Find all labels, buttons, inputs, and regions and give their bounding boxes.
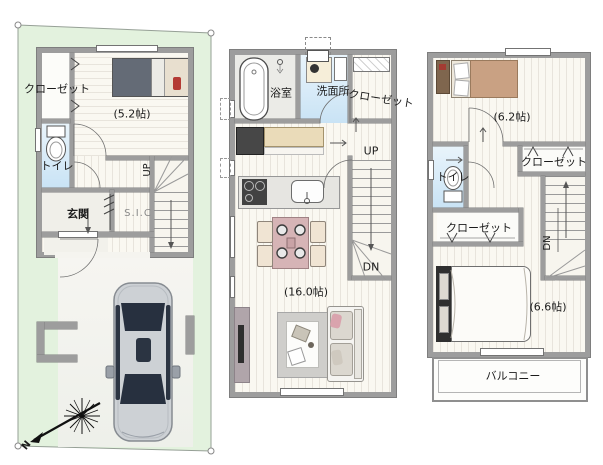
label-stairs-up-1f: UP [143,163,153,176]
sofa-backrest [354,309,362,379]
dining-chair [310,221,326,243]
label-toilet-1f: トイレ [41,161,74,172]
wall [352,276,391,280]
kitchen-counter [264,127,324,147]
wall [503,142,585,146]
bed-1f-blanket [151,59,165,96]
equipment-box [307,50,329,62]
wall [110,190,114,232]
stairs-1f [154,192,188,252]
stove [242,179,267,205]
window [480,348,544,356]
garage-wall-mark [37,355,77,362]
wall [348,156,352,280]
sink [291,180,324,203]
label-bathroom: 浴室 [270,88,292,99]
window [280,388,344,396]
wall [433,208,523,212]
closet-2f-shelf-hatch [354,58,389,71]
wall [42,188,150,192]
bed-3f-bottom-pillow [439,306,449,333]
label-living-size: (16.0帖) [284,287,328,298]
label-bedroom2-size: (6.6帖) [529,302,566,313]
garage-wall-mark [186,316,194,354]
label-compass-north: N [20,440,33,453]
wall [541,176,545,280]
wall [42,119,70,123]
window [428,160,434,180]
label-shoe-closet: S.I.C [124,209,152,219]
bed-3f-top-pillow [453,62,470,79]
driveway [58,257,193,447]
stairs-2f [352,160,391,234]
wall [433,242,523,246]
window [230,216,235,258]
label-washroom: 洗面所 [317,86,350,97]
label-toilet-3f: トイレ [437,172,470,183]
kitchen-cabinet [264,147,324,155]
cup [308,342,314,348]
stairs-1f-winder [154,156,188,192]
stairs-3f-winder [545,246,585,280]
nightstand-item [439,64,446,70]
bed-1f-cushion [173,77,181,90]
bed-3f-top-pillow [453,79,469,96]
bed-3f-bottom-pillow [439,273,449,300]
label-closet-3f-right: クローゼット [521,157,587,168]
dining-table [272,217,309,269]
wall [519,208,523,246]
label-balcony: バルコニー [486,371,541,382]
label-closet-1f: クローゼット [24,84,90,95]
dining-chair [310,245,326,267]
bed-3f-bottom-duvet [451,266,531,342]
garage-opening [55,252,150,258]
dining-chair [257,245,273,267]
wall [106,156,188,160]
label-closet-3f-left: クローゼット [446,223,512,234]
window [96,45,158,52]
bed-1f [112,58,188,97]
equipment-dashed-box [220,98,231,120]
label-bedroom1-size: (6.2帖) [493,112,530,123]
vanity [334,57,347,81]
wall [352,119,391,123]
bed-1f-duvet [113,59,151,96]
toilet-1f-floor [42,123,70,188]
wall [518,172,585,176]
refrigerator [236,127,264,155]
wall [545,276,585,280]
label-stairs-down-2f: DN [363,262,380,273]
dining-chair [257,221,273,243]
entrance-door [58,231,98,238]
equipment-dashed-box [220,158,231,178]
washing-machine-drum [310,64,319,73]
floorplan-canvas: クローゼット (5.2帖) トイレ 玄関 S.I.C UP N [0,0,603,465]
bed-3f-top-duvet [470,60,518,98]
label-bedroom-1f-size: (5.2帖) [113,109,150,120]
tv [238,325,244,363]
wall [235,119,320,123]
window [230,276,235,298]
label-stairs-down-3f: DN [543,235,553,250]
window [505,48,551,56]
label-entrance: 玄関 [67,209,89,220]
wall [296,55,300,123]
wall [433,142,468,146]
window [35,128,41,152]
label-stairs-up-2f: UP [364,146,379,157]
